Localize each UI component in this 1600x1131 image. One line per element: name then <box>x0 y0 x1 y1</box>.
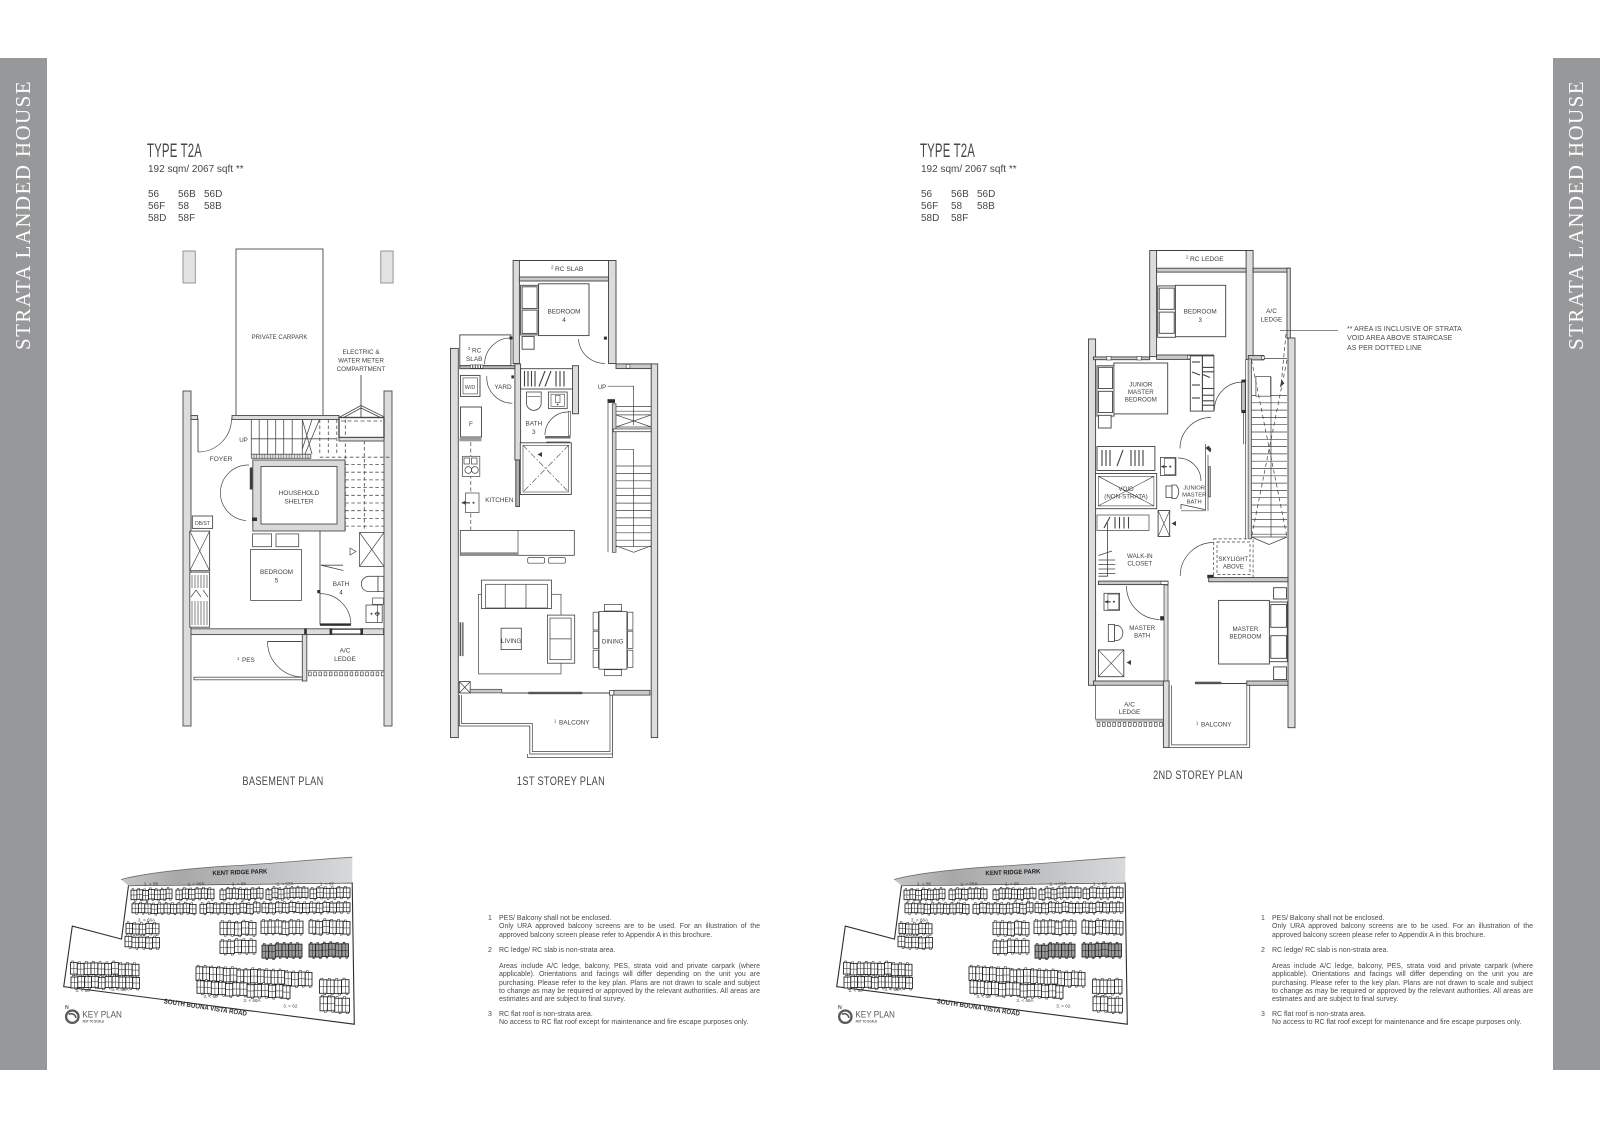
svg-text:1: 1 <box>237 656 240 661</box>
svg-text:PRIVATE CARPARK: PRIVATE CARPARK <box>252 334 308 341</box>
svg-text:A/C: A/C <box>340 648 351 655</box>
svg-text:BEDROOM: BEDROOM <box>1184 309 1217 316</box>
svg-text:COMPARTMENT: COMPARTMENT <box>337 366 386 373</box>
svg-text:BEDROOM: BEDROOM <box>260 569 293 576</box>
svg-text:1: 1 <box>554 719 557 724</box>
svg-text:MASTER: MASTER <box>1233 626 1259 633</box>
svg-text:(NON-STRATA): (NON-STRATA) <box>1104 494 1147 501</box>
svg-text:BATH: BATH <box>333 581 350 588</box>
svg-text:BATH: BATH <box>1187 499 1202 505</box>
svg-text:BEDROOM: BEDROOM <box>1229 634 1261 641</box>
svg-text:JUNIOR: JUNIOR <box>1183 485 1205 491</box>
svg-text:BATH: BATH <box>526 421 543 428</box>
svg-text:MASTER: MASTER <box>1129 625 1155 632</box>
svg-text:3. < 66: 3. < 66 <box>144 881 159 887</box>
svg-text:F: F <box>469 421 473 428</box>
svg-text:3: 3 <box>1198 317 1202 324</box>
svg-text:VOID: VOID <box>1118 486 1134 493</box>
svg-text:3. < 62A: 3. < 62A <box>276 881 294 887</box>
svg-text:MASTER: MASTER <box>1182 492 1206 498</box>
svg-text:LEDGE: LEDGE <box>334 656 356 663</box>
svg-text:DINING: DINING <box>602 639 624 646</box>
svg-text:3. < 62: 3. < 62 <box>320 881 335 887</box>
svg-text:RC: RC <box>472 348 482 355</box>
svg-text:FOYER: FOYER <box>210 456 233 463</box>
svg-text:YARD: YARD <box>494 384 512 391</box>
svg-text:A/C: A/C <box>1124 702 1135 709</box>
svg-text:JUNIOR: JUNIOR <box>1129 382 1153 389</box>
svg-text:RC SLAB: RC SLAB <box>555 266 584 273</box>
svg-text:MASTER: MASTER <box>1128 389 1154 396</box>
svg-text:RC LEDGE: RC LEDGE <box>1190 256 1224 263</box>
svg-text:LIVING: LIVING <box>501 638 521 645</box>
svg-text:WATER METER: WATER METER <box>338 358 384 365</box>
svg-text:ELECTRIC &: ELECTRIC & <box>342 349 380 356</box>
svg-text:WALK-IN: WALK-IN <box>1127 553 1153 560</box>
svg-text:2: 2 <box>551 265 554 270</box>
svg-text:SHELTER: SHELTER <box>284 499 313 506</box>
svg-text:UP: UP <box>239 437 248 444</box>
svg-text:3. < 66A: 3. < 66A <box>187 881 205 887</box>
svg-text:2: 2 <box>1186 255 1189 260</box>
svg-text:ABOVE: ABOVE <box>1223 565 1244 571</box>
svg-text:BALCONY: BALCONY <box>1201 722 1232 729</box>
svg-text:LEDGE: LEDGE <box>1119 709 1141 716</box>
svg-text:PES: PES <box>242 657 255 664</box>
svg-text:NOT TO SCALE: NOT TO SCALE <box>83 1019 105 1024</box>
svg-text:5: 5 <box>275 578 279 585</box>
svg-text:A/C: A/C <box>1266 308 1277 315</box>
svg-text:W/D: W/D <box>465 385 476 391</box>
svg-text:3. < 60: 3. < 60 <box>203 994 218 999</box>
svg-text:BALCONY: BALCONY <box>559 720 590 727</box>
svg-text:1: 1 <box>1196 721 1199 726</box>
svg-text:3. < 66: 3. < 66 <box>232 881 247 887</box>
svg-text:3. < 62: 3. < 62 <box>283 1003 298 1008</box>
svg-text:DB/ST: DB/ST <box>195 521 210 527</box>
svg-text:N: N <box>65 1005 69 1011</box>
svg-text:4: 4 <box>339 590 343 597</box>
svg-text:KITCHEN: KITCHEN <box>485 497 513 504</box>
svg-text:3. < 60: 3. < 60 <box>76 988 91 993</box>
svg-text:SKYLIGHT: SKYLIGHT <box>1219 557 1249 563</box>
svg-text:BATH: BATH <box>1134 633 1150 640</box>
svg-text:3. < 60A: 3. < 60A <box>111 987 129 992</box>
svg-text:LEDGE: LEDGE <box>1261 317 1283 324</box>
svg-text:CLOSET: CLOSET <box>1127 561 1152 568</box>
svg-text:SLAB: SLAB <box>466 356 482 363</box>
svg-text:3: 3 <box>532 429 536 436</box>
svg-text:BEDROOM: BEDROOM <box>1125 397 1157 404</box>
svg-text:4: 4 <box>562 317 566 324</box>
svg-text:HOUSEHOLD: HOUSEHOLD <box>279 490 320 497</box>
svg-text:BEDROOM: BEDROOM <box>547 309 580 316</box>
svg-text:UP: UP <box>598 384 607 391</box>
svg-text:3. < 66A: 3. < 66A <box>243 998 261 1003</box>
